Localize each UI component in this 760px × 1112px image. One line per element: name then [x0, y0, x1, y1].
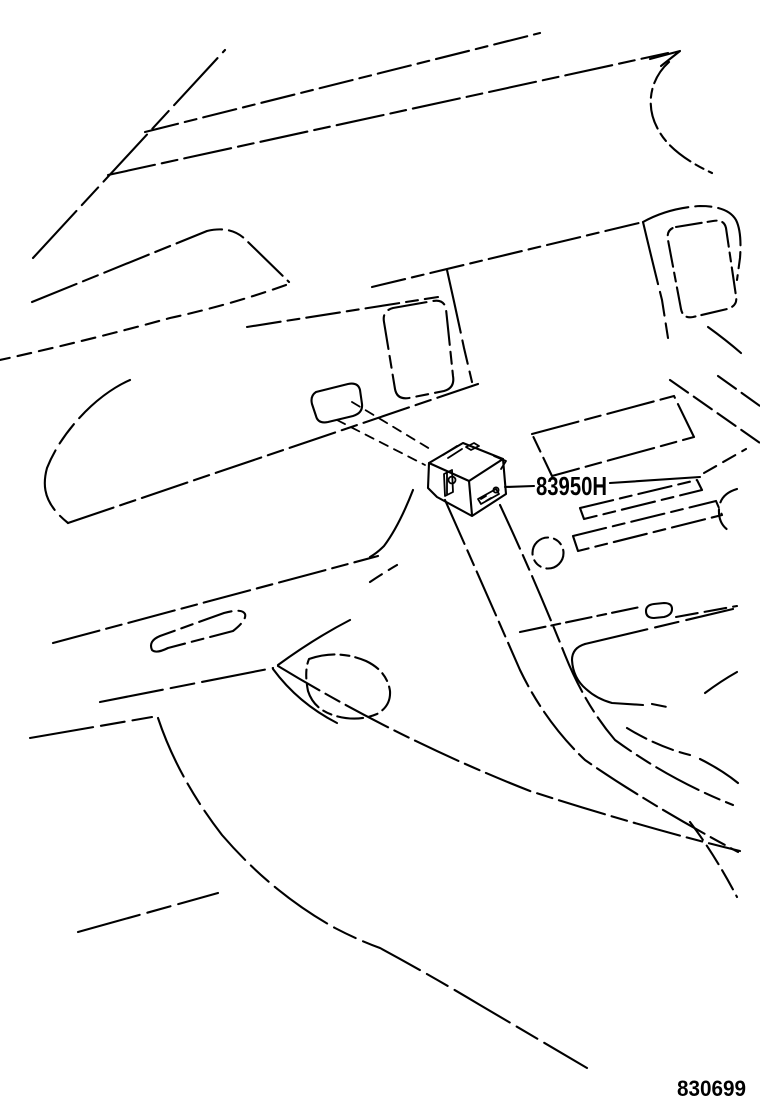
windshield-header-lines [108, 33, 680, 175]
rearview-mirror-curve [651, 62, 712, 173]
console-side-lines [278, 500, 740, 897]
part-number-callout[interactable]: 83950H [536, 471, 607, 501]
console-button-pill [646, 603, 672, 618]
figure-number-label: 830699 [677, 1076, 746, 1101]
a-pillar-line [33, 50, 225, 258]
nav-display-opening [532, 396, 694, 476]
side-defroster-vent [668, 221, 737, 318]
parts-diagram-page: 83950H [0, 0, 760, 1112]
center-vent [384, 301, 454, 399]
locator-leader-lines [337, 402, 430, 465]
glovebox-handle [151, 611, 245, 652]
dash-divider-lines [447, 222, 668, 382]
floor-contour-lines [78, 718, 587, 1068]
body-line-behind-label [704, 449, 746, 473]
console-surface [520, 603, 738, 783]
switch-part [428, 443, 506, 516]
leader-line [505, 486, 534, 487]
dashboard-line-art: 83950H [0, 0, 760, 1112]
dash-right-corner [643, 206, 760, 443]
steering-column-shroud [273, 620, 390, 723]
